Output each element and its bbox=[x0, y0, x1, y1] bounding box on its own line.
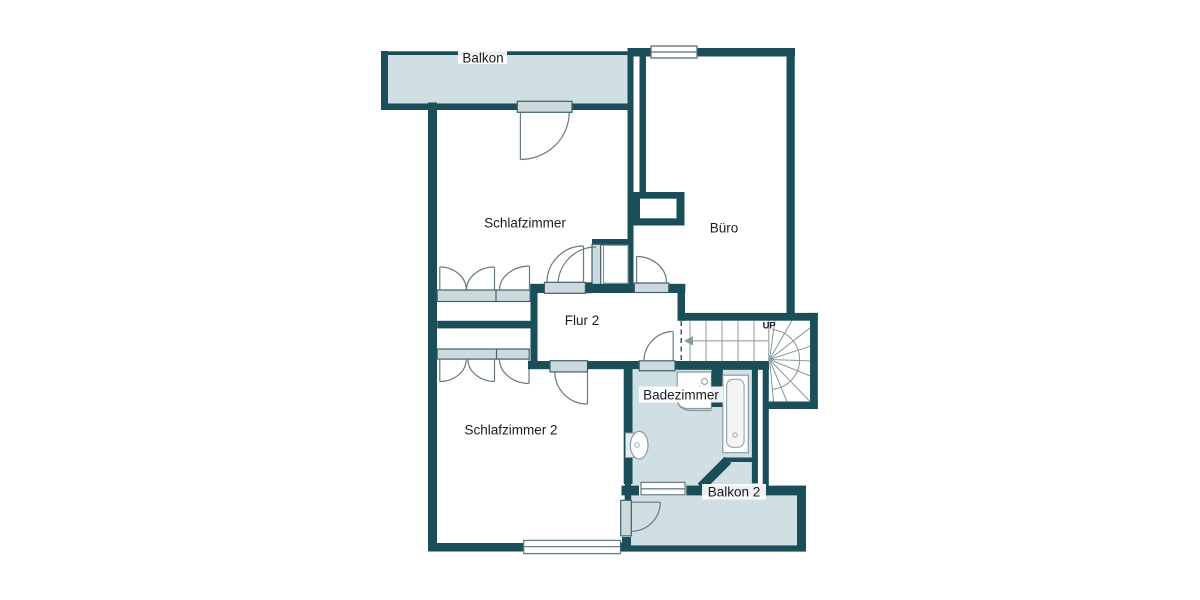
svg-text:Balkon 2: Balkon 2 bbox=[708, 485, 761, 500]
svg-text:Flur 2: Flur 2 bbox=[565, 313, 600, 328]
svg-text:UP: UP bbox=[763, 321, 777, 332]
svg-text:Schlafzimmer 2: Schlafzimmer 2 bbox=[464, 423, 557, 438]
svg-text:Büro: Büro bbox=[710, 220, 739, 235]
svg-text:Balkon: Balkon bbox=[462, 51, 503, 66]
svg-text:Badezimmer: Badezimmer bbox=[643, 388, 719, 403]
svg-text:Schlafzimmer: Schlafzimmer bbox=[484, 216, 566, 231]
